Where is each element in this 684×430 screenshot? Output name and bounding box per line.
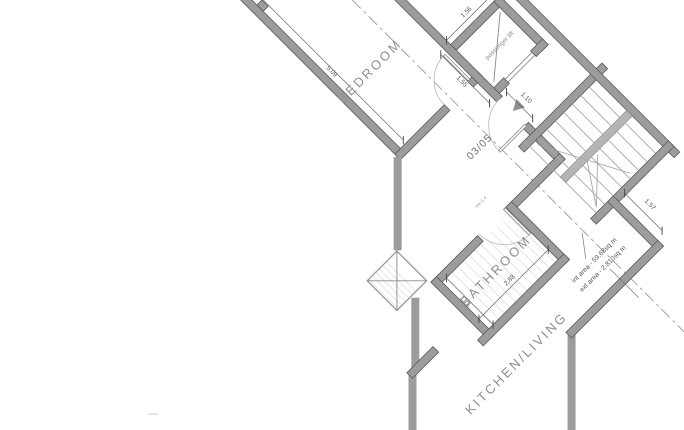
floor-plan-svg: 5.09 1.56 1.55 1.10 2.88 1.71	[0, 0, 684, 430]
floor-plan-page: 5.09 1.56 1.55 1.10 2.88 1.71	[0, 0, 684, 430]
